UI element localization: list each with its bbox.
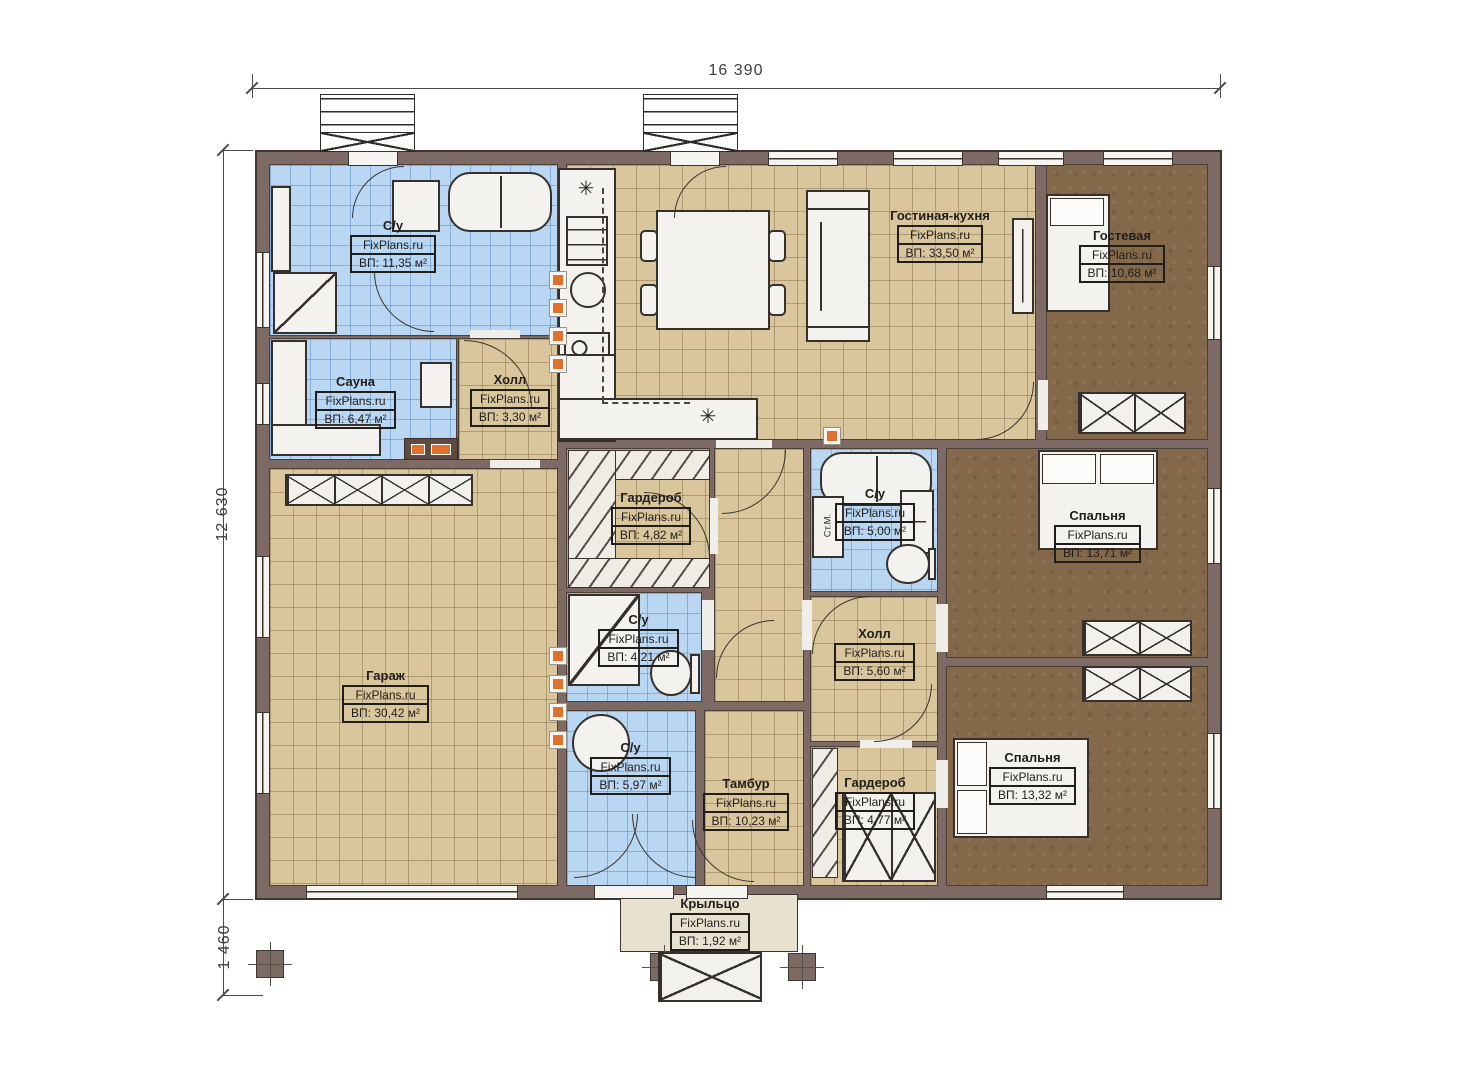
counter-outline <box>602 402 690 404</box>
vent-marker <box>550 328 566 344</box>
window <box>1207 733 1221 809</box>
stove-coal <box>431 444 451 455</box>
door-gap <box>490 460 540 468</box>
stair-base <box>644 132 737 151</box>
wardrobe-hatch <box>568 558 710 588</box>
room-label-bathroom-4: С/у FixPlans.ruВП: 5,97 м² <box>578 740 683 795</box>
room-name: Крыльцо <box>640 896 780 911</box>
dimension-left-label: 12 630 <box>214 454 232 574</box>
room-area: ВП: 5,97 м² <box>592 777 668 793</box>
wardrobe-symbol <box>1082 666 1192 702</box>
window <box>1207 488 1221 564</box>
vent-symbol: ✳ <box>566 176 606 201</box>
room-area: ВП: 3,30 м² <box>472 409 548 425</box>
watermark: FixPlans.ru <box>1056 527 1139 545</box>
window <box>256 712 270 794</box>
room-area: ВП: 1,92 м² <box>672 933 748 949</box>
toilet <box>886 544 930 584</box>
porch-steps <box>658 952 762 1002</box>
room-label-tambour: Тамбур FixPlans.ruВП: 10,23 м² <box>696 776 796 831</box>
vent-marker <box>824 428 840 444</box>
room-label-garage: Гараж FixPlans.ruВП: 30,42 м² <box>328 668 443 723</box>
door-gap <box>860 740 912 748</box>
wardrobe-symbol <box>1082 620 1192 656</box>
bathtub <box>448 172 552 232</box>
tub-divider <box>500 176 502 228</box>
dimension-bottomleft-label: 1 460 <box>216 887 234 1007</box>
watermark: FixPlans.ru <box>837 794 913 812</box>
room-label-porch: Крыльцо FixPlans.ruВП: 1,92 м² <box>640 896 780 951</box>
kitchen-counter <box>558 398 758 440</box>
room-label-hall-2: Холл FixPlans.ruВП: 5,60 м² <box>822 626 927 681</box>
dimension-left-ext-top <box>223 150 253 151</box>
floor-plan: 16 390 12 630 1 460 <box>0 0 1473 1080</box>
pillow <box>1100 454 1154 484</box>
watermark: FixPlans.ru <box>317 393 393 411</box>
room-area: ВП: 10,23 м² <box>705 813 788 829</box>
vent-marker <box>550 676 566 692</box>
room-name: С/у <box>820 486 930 501</box>
exterior-stairs <box>643 94 738 152</box>
watermark: FixPlans.ru <box>344 687 427 705</box>
door-opening <box>348 151 398 166</box>
stair-base <box>321 132 414 151</box>
window <box>998 151 1064 166</box>
room-name: Холл <box>460 372 560 387</box>
room-area: ВП: 33,50 м² <box>899 245 982 261</box>
dimension-top-label: 16 390 <box>636 62 836 80</box>
vent-symbol: ✳ <box>688 404 728 429</box>
room-name: С/у <box>338 218 448 233</box>
door-gap <box>710 498 718 554</box>
dimension-top-line <box>252 88 1220 89</box>
window <box>893 151 963 166</box>
room-area: ВП: 5,00 м² <box>837 523 913 539</box>
room-name: Тамбур <box>696 776 796 791</box>
room-name: С/у <box>578 740 683 755</box>
watermark: FixPlans.ru <box>899 227 982 245</box>
room-label-bathroom-2: С/у FixPlans.ruВП: 5,00 м² <box>820 486 930 541</box>
window <box>768 151 838 166</box>
garage-gate <box>306 885 518 899</box>
vent-marker <box>550 732 566 748</box>
chair <box>768 284 786 316</box>
stove-coal <box>411 444 425 455</box>
sauna-heater <box>420 362 452 408</box>
room-area: ВП: 6,47 м² <box>317 411 393 427</box>
door-gap <box>716 440 772 448</box>
watermark: FixPlans.ru <box>672 915 748 933</box>
watermark: FixPlans.ru <box>837 505 913 523</box>
vent-marker <box>550 272 566 288</box>
room-area: ВП: 4,82 м² <box>613 527 689 543</box>
toilet-tank <box>690 654 700 694</box>
chair <box>640 230 658 262</box>
pillow <box>1042 454 1096 484</box>
room-area: ВП: 10,68 м² <box>1081 265 1164 281</box>
window <box>256 556 270 638</box>
room-name: Гостевая <box>1062 228 1182 243</box>
door-gap <box>470 330 520 338</box>
door-gap <box>936 604 948 652</box>
room-label-living: Гостиная-кухня FixPlans.ruВП: 33,50 м² <box>880 208 1000 263</box>
window <box>256 383 270 425</box>
door-gap <box>702 600 714 650</box>
wardrobe-symbol <box>285 474 473 506</box>
pillow <box>1050 198 1104 226</box>
room-name: Спальня <box>975 750 1090 765</box>
vent-marker <box>550 300 566 316</box>
watermark: FixPlans.ru <box>600 631 676 649</box>
room-name: Гараж <box>328 668 443 683</box>
door-opening <box>670 151 720 166</box>
window <box>1207 266 1221 340</box>
chair <box>768 230 786 262</box>
porch-column <box>788 953 816 981</box>
room-name: Спальня <box>1040 508 1155 523</box>
watermark: FixPlans.ru <box>705 795 788 813</box>
room-area: ВП: 4,21 м² <box>600 649 676 665</box>
room-label-bedroom-2: Спальня FixPlans.ruВП: 13,32 м² <box>975 750 1090 805</box>
room-label-bathroom-3: С/у FixPlans.ruВП: 4,21 м² <box>586 612 691 667</box>
shower-tray <box>273 272 337 334</box>
room-name: Сауна <box>308 374 403 389</box>
vent-marker <box>550 356 566 372</box>
room-label-sauna: Сауна FixPlans.ruВП: 6,47 м² <box>308 374 403 429</box>
toilet-tank <box>928 548 936 580</box>
vent-marker <box>550 704 566 720</box>
room-area: ВП: 13,71 м² <box>1056 545 1139 561</box>
dining-table <box>656 210 770 330</box>
room-area: ВП: 13,32 м² <box>991 787 1074 803</box>
room-label-wardrobe-2: Гардероб FixPlans.ruВП: 4,77 м² <box>820 775 930 830</box>
window <box>1103 151 1173 166</box>
room-label-bathroom-1: С/у FixPlans.ruВП: 11,35 м² <box>338 218 448 273</box>
room-label-bedroom-1: Спальня FixPlans.ruВП: 13,71 м² <box>1040 508 1155 563</box>
window <box>256 252 270 328</box>
room-name: С/у <box>586 612 691 627</box>
room-name: Гардероб <box>820 775 930 790</box>
room-label-hall-1: Холл FixPlans.ruВП: 3,30 м² <box>460 372 560 427</box>
room-name: Гардероб <box>596 490 706 505</box>
sauna-stove <box>404 438 458 460</box>
window <box>1046 885 1124 899</box>
shelf <box>271 186 291 272</box>
counter-outline <box>602 188 604 402</box>
column <box>256 950 284 978</box>
room-area: ВП: 5,60 м² <box>836 663 912 679</box>
watermark: FixPlans.ru <box>613 509 689 527</box>
room-label-wardrobe-1: Гардероб FixPlans.ruВП: 4,82 м² <box>596 490 706 545</box>
vent-marker <box>550 648 566 664</box>
watermark: FixPlans.ru <box>1081 247 1164 265</box>
kitchen-sink <box>570 272 606 308</box>
wardrobe-symbol <box>1078 392 1186 434</box>
watermark: FixPlans.ru <box>836 645 912 663</box>
watermark: FixPlans.ru <box>352 237 434 255</box>
tv-stand <box>1012 218 1034 314</box>
chair <box>640 284 658 316</box>
room-label-guest: Гостевая FixPlans.ruВП: 10,68 м² <box>1062 228 1182 283</box>
sofa <box>806 190 870 342</box>
watermark: FixPlans.ru <box>592 759 668 777</box>
room-name: Гостиная-кухня <box>880 208 1000 223</box>
room-area: ВП: 30,42 м² <box>344 705 427 721</box>
door-gap <box>802 600 812 650</box>
watermark: FixPlans.ru <box>991 769 1074 787</box>
watermark: FixPlans.ru <box>472 391 548 409</box>
door-gap <box>936 760 948 808</box>
room-area: ВП: 4,77 м² <box>837 812 913 828</box>
exterior-stairs <box>320 94 415 152</box>
door-gap <box>1038 380 1048 430</box>
room-area: ВП: 11,35 м² <box>352 255 434 271</box>
room-name: Холл <box>822 626 927 641</box>
